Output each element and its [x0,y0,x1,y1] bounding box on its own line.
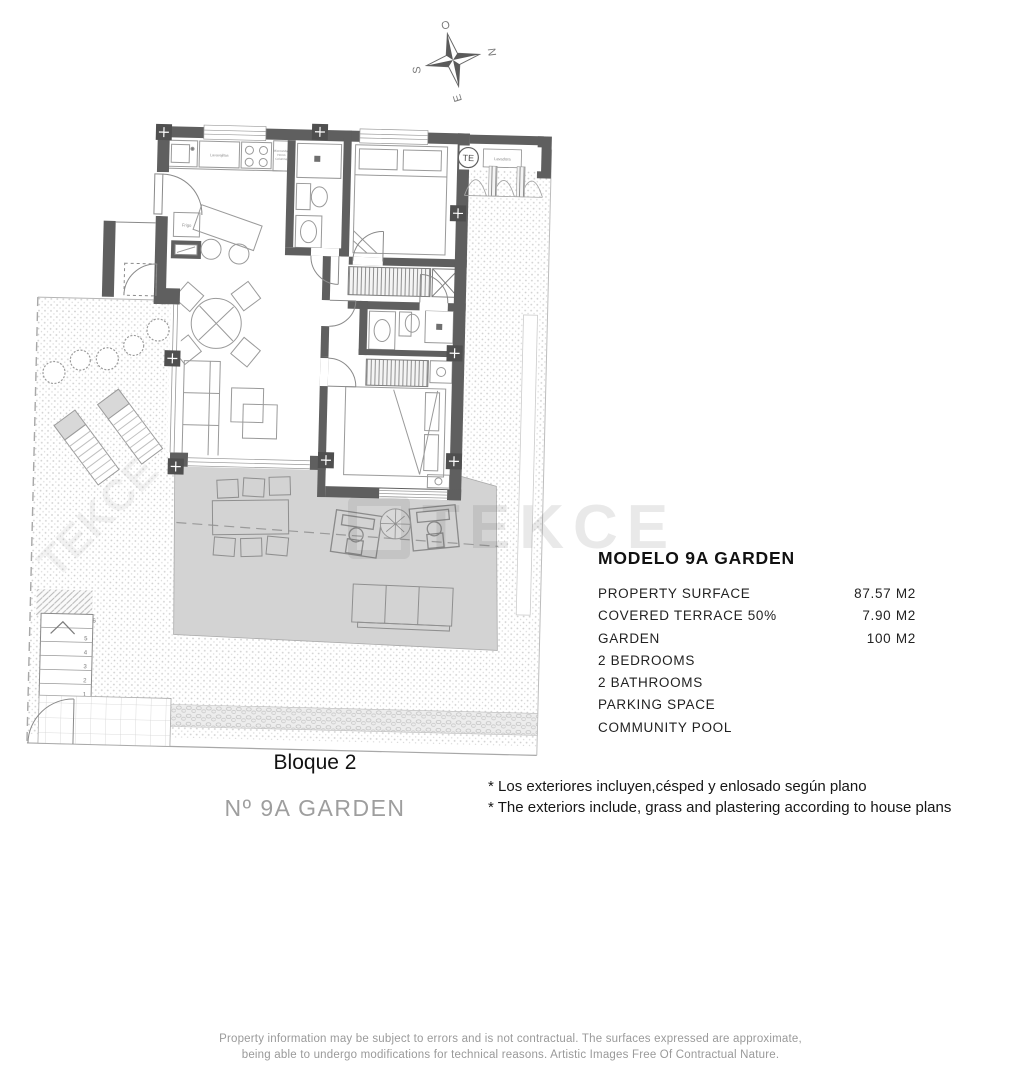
plan-group: TEKCE [24,117,553,755]
floorplan-svg: O N E S TEKCE [0,0,1021,1080]
floorplan-page: O N E S TEKCE [0,0,1021,1080]
hall-wardrobe [348,267,459,298]
plan-captions: Bloque 2 Nº 9A GARDEN [170,751,460,822]
exterior-notes: * Los exteriores incluyen,césped y enlos… [488,776,951,818]
compass-south-letter: S [411,66,423,74]
spec-row-bedrooms: 2 BEDROOMS [598,650,916,672]
spec-panel: MODELO 9A GARDEN PROPERTY SURFACE 87.57 … [598,548,916,739]
disclaimer-line-2: being able to undergo modifications for … [0,1047,1021,1063]
compass-north-letter: N [485,47,498,56]
unit-label: Nº 9A GARDEN [170,795,460,822]
hatched-patch [36,589,93,616]
kitchen-fridge-label: Frigo [182,223,192,228]
patio-te-label: TE [462,153,474,163]
spec-row-property-surface: PROPERTY SURFACE 87.57 M2 [598,583,916,605]
spec-row-garden: GARDEN 100 M2 [598,628,916,650]
compass-east-letter: E [451,93,465,104]
kitchen-dishwasher-label: Lavavajillas [210,153,229,157]
bedroom2-wardrobe [366,359,429,387]
block-label: Bloque 2 [170,751,460,775]
compass-rose: O N E S [402,10,506,110]
note-line-en: * The exteriors include, grass and plast… [488,797,951,818]
apartment-floor [149,126,470,501]
terrace-plant [380,509,411,540]
entry-lobby-tiles [38,695,171,746]
spec-row-covered-terrace: COVERED TERRACE 50% 7.90 M2 [598,605,916,627]
disclaimer-line-1: Property information may be subject to e… [0,1031,1021,1047]
spec-row-bathrooms: 2 BATHROOMS [598,672,916,694]
patio-washer-label: Lavadora [494,156,512,161]
kitchen-oven-column-label-3: Columna [275,157,287,161]
note-line-es: * Los exteriores incluyen,césped y enlos… [488,776,951,797]
model-title: MODELO 9A GARDEN [598,548,916,569]
disclaimer: Property information may be subject to e… [0,1031,1021,1063]
compass-west-letter: O [440,19,451,33]
spec-row-pool: COMMUNITY POOL [598,717,916,739]
spec-row-parking: PARKING SPACE [598,694,916,716]
